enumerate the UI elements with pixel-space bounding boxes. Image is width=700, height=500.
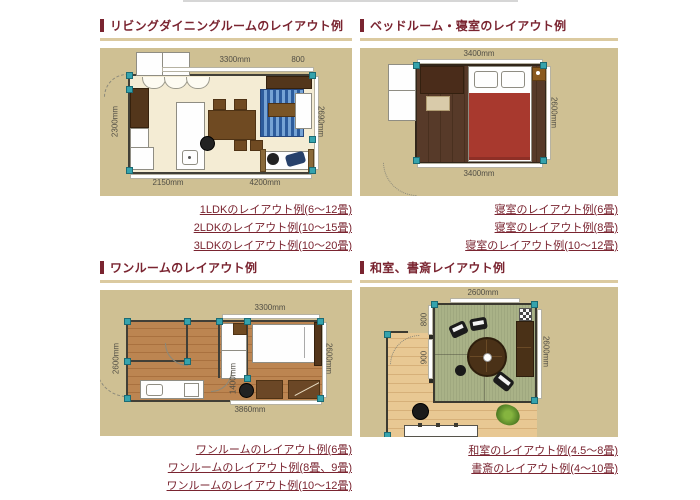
corner-marker xyxy=(309,72,316,79)
dimension-label-bottom: 3860mm xyxy=(200,405,300,414)
rug xyxy=(288,380,320,399)
cabinet-divider xyxy=(517,347,531,348)
corner-marker xyxy=(184,358,191,365)
corner-marker xyxy=(216,318,223,325)
corner-marker xyxy=(126,72,133,79)
closet xyxy=(136,52,164,76)
corner-marker xyxy=(431,301,438,308)
dining-chair xyxy=(234,99,247,110)
dining-table xyxy=(208,110,256,140)
section-header: ワンルームのレイアウト例 xyxy=(100,260,352,275)
section-title: 和室、書斎レイアウト例 xyxy=(370,259,505,276)
dimension-strip xyxy=(417,163,543,168)
link-list: 1LDKのレイアウト例(6〜12畳) 2LDKのレイアウト例(10〜15畳) 3… xyxy=(100,201,352,255)
floor-cushion xyxy=(455,365,466,376)
dimension-label-top: 3400mm xyxy=(415,49,543,58)
corner-marker xyxy=(384,432,391,437)
dimension-label-left-upper: 800 xyxy=(420,305,429,335)
dining-chair xyxy=(213,99,226,110)
cropped-top-edge xyxy=(183,0,518,2)
shoji-window-icon xyxy=(519,308,532,321)
interior-wall xyxy=(218,322,220,378)
link-study-layout[interactable]: 書斎のレイアウト例(4〜10畳) xyxy=(360,460,618,478)
link-bedroom-8[interactable]: 寝室のレイアウト例(8畳) xyxy=(360,219,618,237)
dimension-label-bottom: 4200mm xyxy=(215,178,315,187)
kitchen-sink xyxy=(146,384,163,396)
accent-bar-icon xyxy=(360,19,364,32)
chair-pad xyxy=(473,320,485,326)
chair-pad xyxy=(452,324,464,332)
engawa-panel xyxy=(404,425,478,437)
link-list: 和室のレイアウト例(4.5〜8畳) 書斎のレイアウト例(4〜10畳) xyxy=(360,442,618,478)
dimension-label-right: 2600mm xyxy=(550,83,559,143)
dimension-label-top-sub: 800 xyxy=(278,55,318,64)
dimension-strip xyxy=(450,298,520,303)
tall-cabinet xyxy=(295,93,312,129)
corner-marker xyxy=(184,318,191,325)
ottoman xyxy=(426,96,450,111)
dimension-strip xyxy=(222,314,320,319)
corner-marker xyxy=(540,62,547,69)
section-divider xyxy=(100,280,352,283)
section-title: ワンルームのレイアウト例 xyxy=(110,259,257,276)
dimension-label-left: 2600mm xyxy=(112,329,121,389)
floorplan-bedroom: 3400mm 2600mm 3400mm xyxy=(360,48,618,196)
floorplan-living-dining: 3300mm 800 2300mm 2690mm 2150mm 4200mm xyxy=(100,48,352,196)
pillow xyxy=(501,71,525,88)
link-bedroom-6[interactable]: 寝室のレイアウト例(6畳) xyxy=(360,201,618,219)
link-washitsu-layout[interactable]: 和室のレイアウト例(4.5〜8畳) xyxy=(360,442,618,460)
corner-marker xyxy=(124,358,131,365)
tv-board xyxy=(268,103,297,117)
dimension-label-left: 2300mm xyxy=(111,92,120,152)
corner-marker xyxy=(317,318,324,325)
accent-bar-icon xyxy=(100,261,104,274)
corner-marker xyxy=(124,395,131,402)
dimension-label-top: 3300mm xyxy=(230,303,310,312)
dimension-strip xyxy=(428,339,433,379)
pillow xyxy=(474,71,498,88)
sink-faucet xyxy=(188,156,191,159)
accent-bar-icon xyxy=(360,261,364,274)
office-chair xyxy=(239,383,254,398)
section-header: 和室、書斎レイアウト例 xyxy=(360,260,618,275)
dimension-label-right: 2600mm xyxy=(542,322,551,382)
corner-marker xyxy=(317,395,324,402)
corner-marker xyxy=(244,375,251,382)
table-center xyxy=(483,353,492,362)
corner-marker xyxy=(126,86,133,93)
kitchen-appliance xyxy=(130,128,149,148)
link-oneroom-6[interactable]: ワンルームのレイアウト例(6畳) xyxy=(100,441,352,459)
dimension-label-top: 2600mm xyxy=(433,288,533,297)
dimension-label-top: 3300mm xyxy=(195,55,275,64)
office-chair xyxy=(200,136,215,151)
corner-marker xyxy=(384,331,391,338)
corner-marker xyxy=(244,318,251,325)
dimension-label-right: 2690mm xyxy=(317,92,326,152)
section-divider xyxy=(360,280,618,283)
engawa-post xyxy=(436,423,440,427)
link-list: ワンルームのレイアウト例(6畳) ワンルームのレイアウト例(8畳、9畳) ワンル… xyxy=(100,441,352,495)
rug-stripe xyxy=(295,381,320,396)
engawa-post xyxy=(418,423,422,427)
dimension-label-bottom: 3400mm xyxy=(415,169,543,178)
link-1ldk-layout[interactable]: 1LDKのレイアウト例(6〜12畳) xyxy=(100,201,352,219)
kitchen-counter xyxy=(130,88,149,128)
link-2ldk-layout[interactable]: 2LDKのレイアウト例(10〜15畳) xyxy=(100,219,352,237)
link-oneroom-10-12[interactable]: ワンルームのレイアウト例(10〜12畳) xyxy=(100,477,352,495)
sofa-armrest xyxy=(260,149,266,172)
floorplan-one-room: 3300mm 2600mm 1400mm 2600mm 3860mm xyxy=(100,290,352,436)
exterior-wall xyxy=(386,333,388,437)
dimension-label-bottom-left: 2150mm xyxy=(128,178,208,187)
engawa-post xyxy=(454,423,458,427)
section-divider xyxy=(100,38,352,41)
link-oneroom-8-9[interactable]: ワンルームのレイアウト例(8畳、9畳) xyxy=(100,459,352,477)
dimension-label-mid: 1400mm xyxy=(229,354,238,404)
rug xyxy=(420,66,464,94)
desk xyxy=(256,380,283,399)
dimension-strip xyxy=(417,59,543,64)
corner-marker xyxy=(309,136,316,143)
link-3ldk-layout[interactable]: 3LDKのレイアウト例(10〜20畳) xyxy=(100,237,352,255)
corner-marker xyxy=(124,318,131,325)
closet xyxy=(162,52,190,76)
dimension-tick xyxy=(429,379,433,383)
corner-marker xyxy=(531,301,538,308)
corner-marker xyxy=(531,397,538,404)
dimension-strip xyxy=(428,305,433,335)
section-title: ベッドルーム・寝室のレイアウト例 xyxy=(370,17,566,34)
wall-shelf xyxy=(266,76,312,89)
floorplan-washitsu: 2600mm 2600mm 800 900 xyxy=(360,287,618,437)
accent-bar-icon xyxy=(100,19,104,32)
link-bedroom-10-12[interactable]: 寝室のレイアウト例(10〜12畳) xyxy=(360,237,618,255)
storage-cabinet xyxy=(516,321,534,377)
refrigerator xyxy=(130,147,154,170)
dining-chair xyxy=(234,140,247,151)
section-header: リビングダイニングルームのレイアウト例 xyxy=(100,18,352,33)
closet xyxy=(388,90,416,121)
stool xyxy=(412,403,429,420)
dimension-label-left-lower: 900 xyxy=(420,343,429,373)
corner-marker xyxy=(540,157,547,164)
lamp xyxy=(536,71,540,75)
corner-marker xyxy=(309,167,316,174)
section-title: リビングダイニングルームのレイアウト例 xyxy=(110,17,343,34)
corner-marker xyxy=(126,167,133,174)
stove xyxy=(184,383,199,397)
section-living-dining: リビングダイニングルームのレイアウト例 xyxy=(100,18,352,255)
link-list: 寝室のレイアウト例(6畳) 寝室のレイアウト例(8畳) 寝室のレイアウト例(10… xyxy=(360,201,618,255)
closet xyxy=(388,64,416,92)
section-divider xyxy=(360,38,618,41)
corner-marker xyxy=(413,62,420,69)
dimension-label-right: 2600mm xyxy=(325,329,334,389)
side-cabinet xyxy=(314,322,322,366)
section-bedroom: ベッドルーム・寝室のレイアウト例 3400mm 2600mm 3400mm xyxy=(360,18,618,255)
bed xyxy=(252,324,316,363)
bed-duvet xyxy=(469,93,530,160)
bed-pillow-line xyxy=(304,327,305,358)
corner-marker xyxy=(413,157,420,164)
floor-chair xyxy=(267,153,279,165)
dimension-strip xyxy=(162,67,314,72)
section-washitsu-study: 和室、書斎レイアウト例 xyxy=(360,260,618,478)
section-header: ベッドルーム・寝室のレイアウト例 xyxy=(360,18,618,33)
section-one-room: ワンルームのレイアウト例 xyxy=(100,260,352,495)
